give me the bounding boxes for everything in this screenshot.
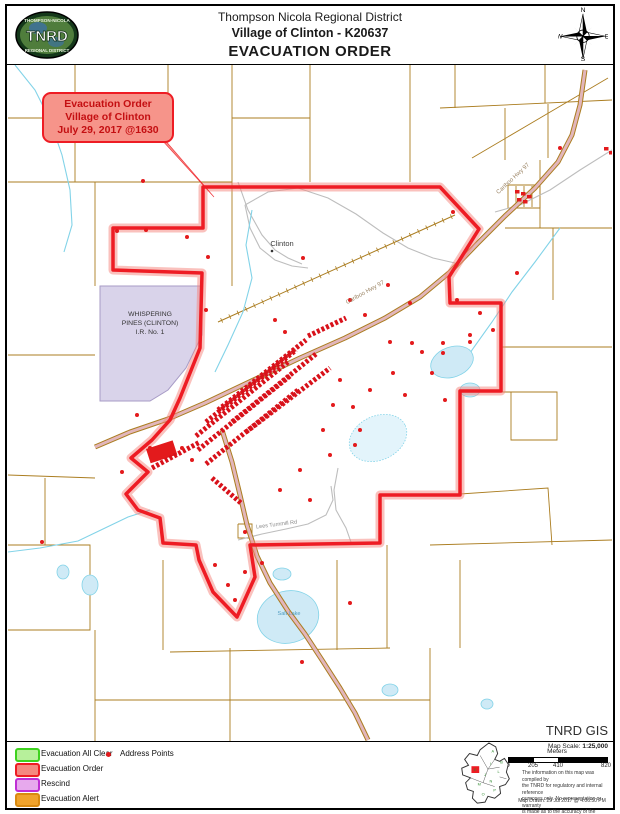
- footer-divider: [7, 741, 613, 742]
- reserve-label-line3: I.R. No. 1: [103, 328, 197, 337]
- scalebar-seg2: [534, 758, 559, 762]
- disclaimer-line2: the TNRD for regulatory and internal ref…: [522, 783, 610, 796]
- callout-line-2: Village of Clinton: [46, 111, 170, 124]
- callout-line-1: Evacuation Order: [46, 98, 170, 111]
- logo-acronym: TNRD: [26, 28, 68, 45]
- reserve-label-line1: WHISPERING: [103, 310, 197, 319]
- scalebar-tick-205: 205: [528, 763, 538, 769]
- svg-text:A: A: [491, 749, 494, 754]
- compass-rose-icon: N S E W: [558, 7, 608, 61]
- map-drawn-timestamp: Map Drawn: 29 Jul 2017 @ 4:06:50 PM: [514, 798, 610, 804]
- all-clear-label: Evacuation All Clear: [41, 749, 113, 758]
- compass-w: W: [558, 34, 563, 41]
- svg-text:O: O: [482, 791, 485, 796]
- map-subtitle: Village of Clinton - K20637: [110, 26, 510, 40]
- svg-text:B: B: [500, 759, 503, 764]
- rescind-label: Rescind: [41, 779, 70, 788]
- lake-label: Salt Lake: [266, 611, 312, 617]
- org-name: Thompson Nicola Regional District: [110, 10, 510, 24]
- town-label: Clinton: [260, 239, 304, 248]
- disclaimer-text: The information on this map was compiled…: [522, 770, 610, 814]
- evacuation-order-map-page: THOMPSON-NICOLA TNRD REGIONAL DISTRICT T…: [0, 0, 620, 814]
- alert-swatch: [15, 793, 40, 807]
- evacuation-callout: Evacuation Order Village of Clinton July…: [42, 92, 174, 143]
- address-points-label: Address Points: [120, 749, 174, 758]
- address-point-icon: [106, 752, 111, 757]
- rescind-swatch: [15, 778, 40, 792]
- tnrd-logo: THOMPSON-NICOLA TNRD REGIONAL DISTRICT: [14, 10, 80, 60]
- gis-credit: TNRD GIS: [498, 723, 608, 738]
- svg-text:E: E: [474, 767, 477, 772]
- reserve-label-line2: PINES (CLINTON): [103, 319, 197, 328]
- map-title-block: Thompson Nicola Regional District Villag…: [110, 10, 510, 60]
- page-title: EVACUATION ORDER: [110, 43, 510, 60]
- region-inset-map: ABEIJLMNOP: [454, 740, 518, 806]
- alert-label: Evacuation Alert: [41, 794, 99, 803]
- scalebar-tick-820: 820: [601, 763, 611, 769]
- compass-e: E: [605, 34, 608, 41]
- disclaimer-line4: is made as to the accuracy of the inform…: [522, 809, 610, 814]
- reserve-label: WHISPERING PINES (CLINTON) I.R. No. 1: [103, 310, 197, 337]
- svg-text:I: I: [490, 761, 491, 766]
- scalebar-unit: Meters: [508, 748, 606, 755]
- logo-bottom-text: REGIONAL DISTRICT: [25, 48, 70, 53]
- disclaimer-line1: The information on this map was compiled…: [522, 770, 610, 783]
- svg-text:P: P: [493, 787, 496, 792]
- order-swatch: [15, 763, 40, 777]
- order-label: Evacuation Order: [41, 764, 103, 773]
- svg-text:J: J: [484, 772, 486, 777]
- svg-text:N: N: [489, 779, 492, 784]
- compass-n: N: [581, 7, 586, 14]
- logo-top-text: THOMPSON-NICOLA: [24, 18, 70, 23]
- compass-s: S: [581, 56, 586, 61]
- scalebar-tick-410: 410: [553, 763, 563, 769]
- svg-text:M: M: [478, 782, 481, 787]
- callout-line-3: July 29, 2017 @1630: [46, 124, 170, 137]
- all-clear-swatch: [15, 748, 40, 762]
- scalebar-seg3: [558, 758, 607, 762]
